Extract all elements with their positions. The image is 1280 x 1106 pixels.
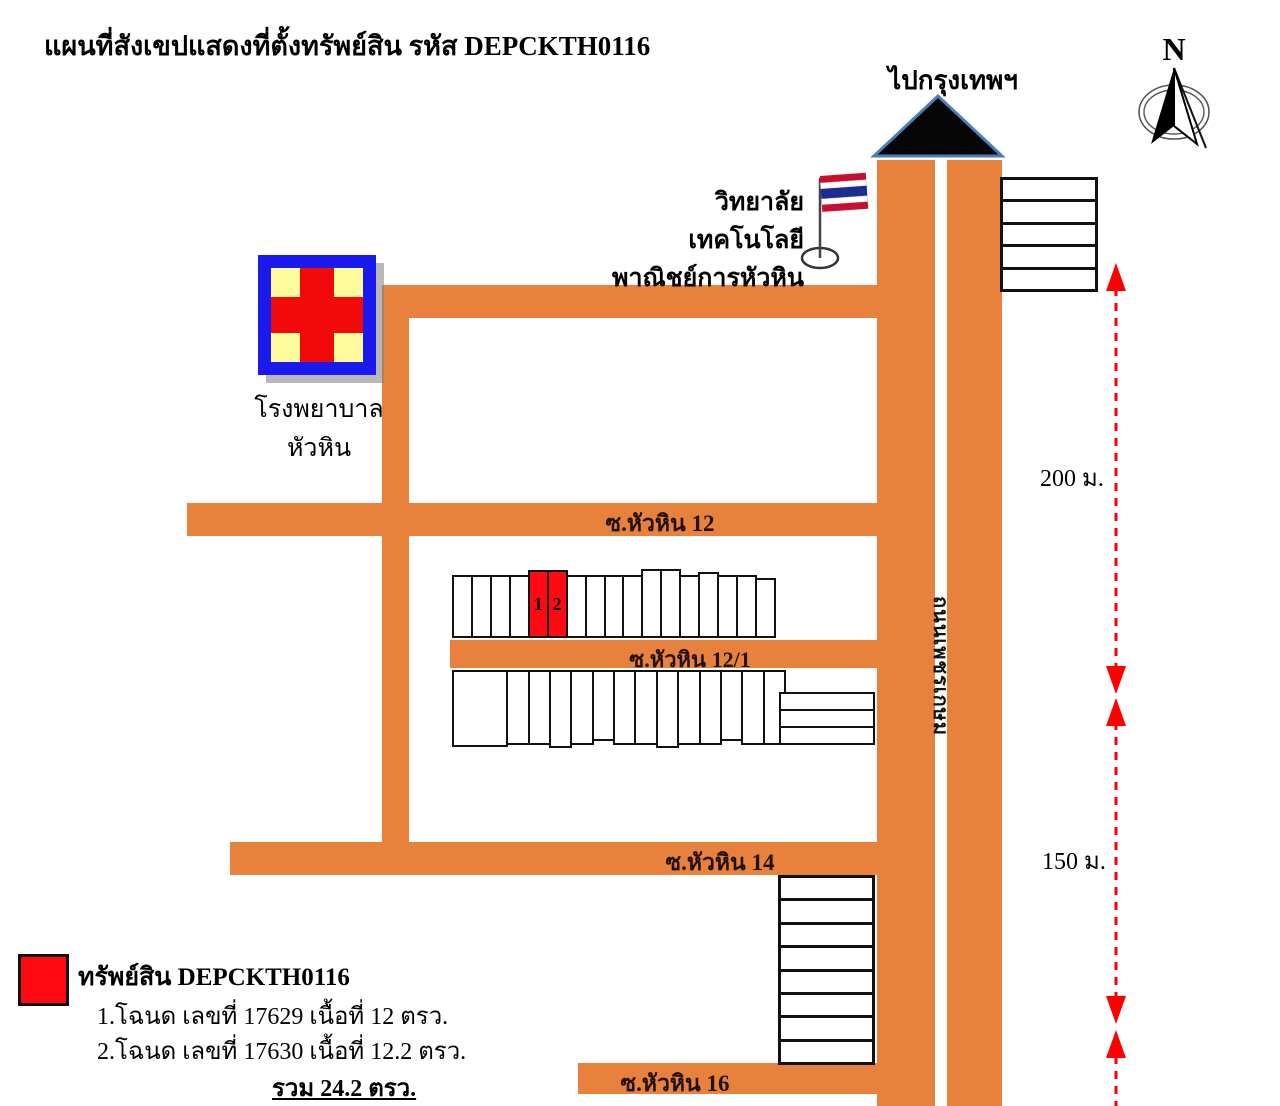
shophouse-unit — [506, 670, 529, 745]
shophouse-unit — [622, 575, 643, 638]
shophouse-unit — [585, 575, 606, 638]
shophouse-unit — [549, 670, 572, 748]
college-name-line1: วิทยาลัยเทคโนโลยี — [600, 184, 804, 260]
road-label-soi-14: ซ.หัวหิน 14 — [640, 845, 800, 881]
building-row — [1003, 225, 1095, 247]
building-row — [781, 972, 872, 995]
north-compass-icon: N — [1126, 30, 1222, 156]
building-row — [781, 901, 872, 924]
shophouse-unit — [528, 670, 551, 745]
shophouse-unit — [755, 578, 776, 638]
legend-total: รวม 24.2 ตรว. — [272, 1068, 416, 1106]
to-bangkok-arrow-icon — [870, 92, 1006, 160]
shophouse-unit — [717, 575, 738, 638]
shophouse-unit — [679, 575, 700, 638]
legend-property-swatch — [18, 954, 69, 1006]
college-label: วิทยาลัยเทคโนโลยี พาณิชย์การหัวหิน — [600, 184, 804, 298]
building-row — [781, 878, 872, 901]
hospital-name-line1: โรงพยาบาล — [238, 390, 400, 429]
shophouse-unit — [641, 569, 662, 638]
shophouse-unit — [452, 670, 508, 747]
building-row — [781, 948, 872, 971]
shophouse-unit — [592, 670, 615, 741]
building-block — [779, 692, 875, 745]
road-label-soi-16: ซ.หัวหิน 16 — [595, 1066, 755, 1102]
shophouse-unit — [604, 575, 625, 638]
building-row — [781, 995, 872, 1018]
shophouse-unit — [634, 670, 657, 745]
property-unit-1: 1 — [528, 570, 549, 638]
building-row — [781, 694, 873, 711]
shophouse-unit — [471, 575, 492, 638]
legend-item: 1.โฉนด เลขที่ 17629 เนื้อที่ 12 ตรว. — [97, 996, 448, 1035]
building-row — [1003, 270, 1095, 289]
legend-item: 2.โฉนด เลขที่ 17630 เนื้อที่ 12.2 ตรว. — [97, 1031, 466, 1070]
hospital-label: โรงพยาบาล หัวหิน — [238, 390, 400, 468]
building-block — [778, 875, 875, 1065]
building-row — [781, 1018, 872, 1041]
shophouse-unit — [720, 670, 743, 741]
shophouse-unit — [660, 569, 681, 638]
road-soi-huahin-12 — [187, 503, 877, 536]
shophouse-unit — [452, 575, 473, 638]
building-row — [781, 728, 873, 743]
building-row — [1003, 247, 1095, 269]
hospital-name-line2: หัวหิน — [238, 429, 400, 468]
shophouse-unit — [656, 670, 679, 748]
building-block — [1000, 177, 1098, 292]
distance-label-200m: 200 ม. — [1040, 458, 1104, 497]
thai-flag-icon — [792, 168, 872, 272]
legend-title: ทรัพย์สิน DEPCKTH0116 — [78, 957, 350, 997]
shophouse-unit — [699, 670, 722, 745]
college-name-line2: พาณิชย์การหัวหิน — [600, 260, 804, 298]
road-label-phetkasem: ถนนเพชรเกษม — [925, 551, 957, 781]
building-row — [1003, 202, 1095, 224]
shophouse-row-lower — [452, 670, 784, 748]
road-label-soi-12: ซ.หัวหิน 12 — [560, 506, 760, 542]
building-row — [781, 711, 873, 728]
shophouse-unit — [677, 670, 700, 745]
property-location-map: แผนที่สังเขปแสดงที่ตั้งทรัพย์สิน รหัส DE… — [0, 0, 1280, 1106]
building-row — [781, 1042, 872, 1062]
road-hospital-street — [382, 285, 409, 875]
building-row — [1003, 180, 1095, 202]
shophouse-unit — [509, 575, 530, 638]
building-row — [781, 925, 872, 948]
distance-arrows-layer — [0, 0, 1280, 1106]
shophouse-unit — [490, 575, 511, 638]
shophouse-row-upper: 1 2 — [452, 569, 774, 638]
shophouse-unit — [613, 670, 636, 745]
page-title: แผนที่สังเขปแสดงที่ตั้งทรัพย์สิน รหัส DE… — [44, 24, 650, 67]
shophouse-unit — [570, 670, 593, 745]
shophouse-unit — [566, 575, 587, 638]
hospital-cross-inner — [271, 268, 363, 362]
shophouse-unit — [698, 572, 719, 638]
distance-label-150m: 150 ม. — [1042, 841, 1106, 880]
property-unit-2: 2 — [547, 570, 568, 638]
compass-north-letter: N — [1162, 31, 1185, 67]
hospital-cross-icon — [258, 255, 376, 375]
shophouse-unit — [736, 575, 757, 638]
shophouse-unit — [741, 670, 764, 745]
